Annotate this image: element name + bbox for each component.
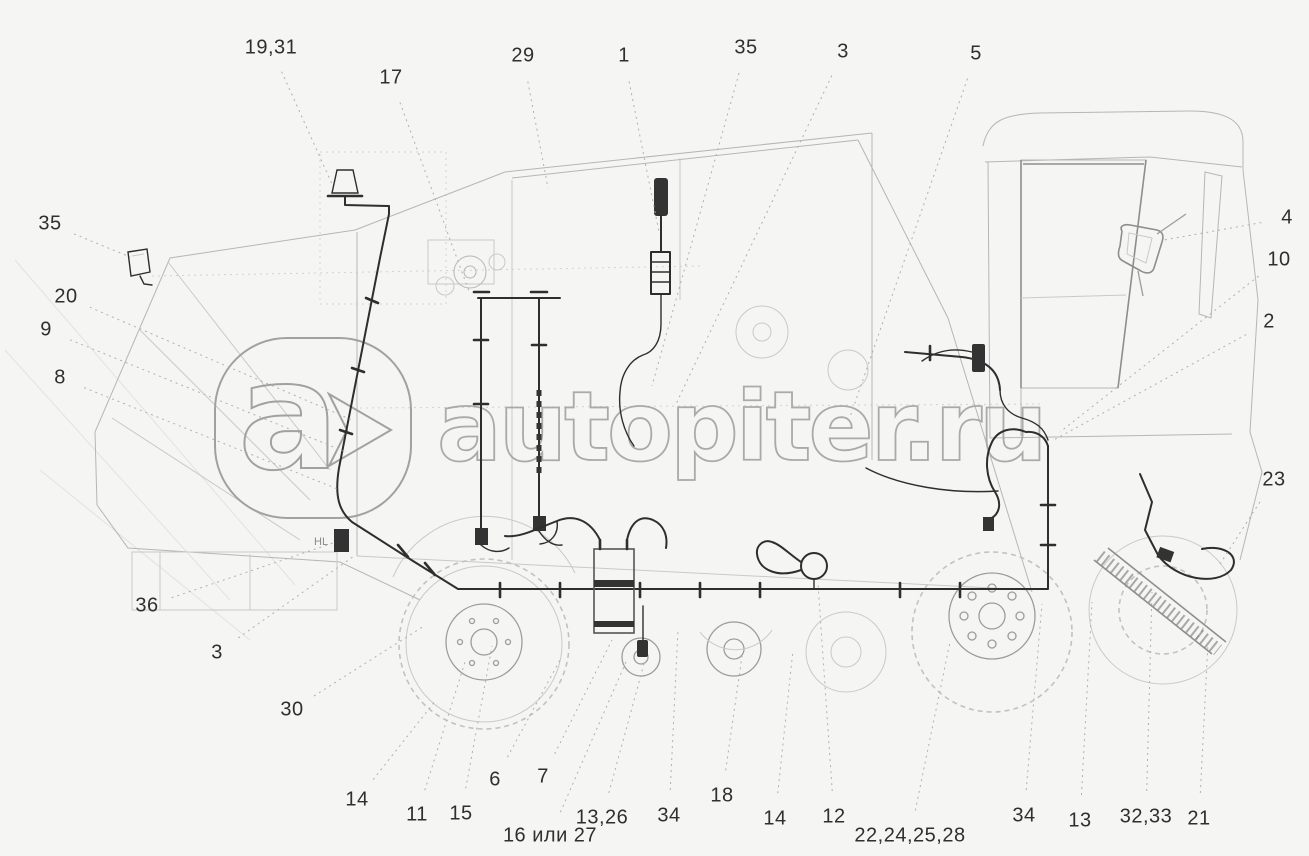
component-label: HL [314,536,328,548]
right-mirror [1118,214,1186,296]
leader-line [1081,602,1092,795]
leader-line [1220,502,1260,564]
callout-7: 7 [537,766,549,789]
callout-32-33: 32,33 [1120,806,1173,829]
leader-line [74,234,130,257]
leader-line [425,662,465,790]
callout-34: 34 [657,805,680,828]
leader-line [282,72,332,184]
leader-line [609,660,645,793]
cab-outline [983,111,1262,560]
callout-4: 4 [1281,207,1293,230]
callout-30: 30 [280,699,303,722]
leader-line [400,102,470,294]
work-lamp [757,541,827,589]
leader-line [1164,223,1261,240]
callout-12: 12 [822,806,845,829]
callout-2: 2 [1263,311,1275,334]
leader-line [507,660,560,757]
leader-line [172,542,336,598]
callout-6: 6 [489,769,501,792]
callout-36: 36 [135,595,158,618]
left-mirror [128,249,152,285]
callout-3: 3 [211,642,223,665]
callout-21: 21 [1187,808,1210,831]
battery-box [505,518,666,633]
callout-5: 5 [970,43,982,66]
leader-line [560,662,626,812]
callout-10: 10 [1267,249,1290,272]
leader-line [652,73,739,386]
leader-line [466,646,492,788]
callout-18: 18 [710,785,733,808]
leader-line [915,642,950,811]
callout-20: 20 [54,286,77,309]
callout-9: 9 [40,319,52,342]
callout-35: 35 [734,37,757,60]
callout-15: 15 [449,803,472,826]
callout-8: 8 [54,367,66,390]
callout-35: 35 [38,213,61,236]
autopiter-watermark: a autopiter.ru [215,330,1044,518]
leader-line [726,656,742,770]
callout-17: 17 [379,67,402,90]
leader-line [1200,642,1208,793]
leader-line [1147,592,1152,791]
watermark-logo-letter: a [238,330,339,504]
rear-chute [1094,548,1226,654]
callout-34: 34 [1012,805,1035,828]
wheels [393,516,1237,729]
callout-29: 29 [511,45,534,68]
leader-line [670,630,678,790]
callout-14: 14 [763,808,786,831]
horn-component: HL [314,529,349,552]
callout-3: 3 [837,41,849,64]
leader-line [676,75,832,404]
leader-line [528,82,548,188]
leader-line [778,650,793,793]
diagram-canvas: a autopiter.ru [0,0,1309,856]
watermark-text: autopiter.ru [437,371,1044,483]
callout-13-26: 13,26 [576,807,629,830]
leader-line [1060,276,1259,432]
callout-22-24-25-28: 22,24,25,28 [854,825,965,848]
callout-13: 13 [1068,810,1091,833]
leader-line [373,700,436,780]
callout-11: 11 [406,804,428,827]
machine-drawing: a autopiter.ru [0,0,1309,856]
leader-line [555,640,612,754]
beacon-lamp [332,170,358,193]
callout-1: 1 [618,45,630,68]
callout-14: 14 [345,789,368,812]
callout-19-31: 19,31 [245,37,298,60]
callout-23: 23 [1262,469,1285,492]
